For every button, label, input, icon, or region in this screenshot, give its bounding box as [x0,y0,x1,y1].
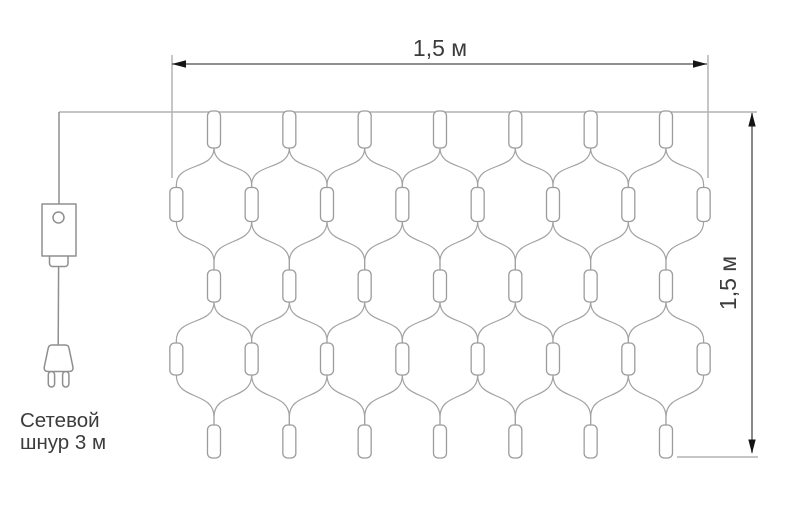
led-lamp [320,188,333,222]
plug-prong-left [48,372,54,388]
arrow-left-icon [172,60,186,67]
plug-prong-right [63,372,69,388]
net-wire [478,375,516,425]
net-wire [591,302,629,343]
net-wire [365,375,403,425]
led-lamp [659,270,672,302]
net-wire [327,375,365,425]
power-cord-assembly [42,112,76,387]
cord-caption-line1: Сетевой [20,409,100,432]
arrow-right-icon [693,60,707,67]
cord-caption-line2: шнур 3 м [20,431,106,454]
net-wire [553,222,591,271]
net-wire [252,148,290,188]
net-wire [252,222,290,271]
net-wire [176,302,214,343]
net-wire [214,222,252,271]
led-lamp [358,270,371,302]
height-dimension: 1,5 м [677,113,758,458]
led-lamp [283,111,296,148]
net-light-diagram: 1,5 м 1,5 м Сетевой шнур 3 м [0,0,793,531]
net-wire [176,375,214,425]
net-wire [365,148,403,188]
net-wire [478,148,516,188]
net-wire [289,375,327,425]
led-lamp [170,343,183,375]
net-wire [289,148,327,188]
width-label: 1,5 м [413,35,467,61]
net-wire [176,148,214,188]
net-wire [176,222,214,271]
net-wire [666,302,704,343]
net-wire [327,222,365,271]
net-wire [252,302,290,343]
led-lamp [283,270,296,302]
led-lamp [659,425,672,458]
led-lamp [433,111,446,148]
led-lamp [509,111,522,148]
led-lamp [170,188,183,222]
led-lamp [320,343,333,375]
net-wire [515,222,553,271]
led-lamp [584,111,597,148]
plug-body [44,345,73,372]
net-wire [553,148,591,188]
net-wire [591,222,629,271]
led-lamp [396,188,409,222]
net-wire [402,375,440,425]
net-wire [214,375,252,425]
led-lamp [622,188,635,222]
net-wire [289,302,327,343]
led-lamp [245,188,258,222]
net-wire [666,222,704,271]
led-lamp [358,111,371,148]
led-lamp [622,343,635,375]
led-lamp [659,111,672,148]
width-dimension: 1,5 м [172,35,708,178]
net-wire [666,375,704,425]
net-wire [402,222,440,271]
cord-caption: Сетевой шнур 3 м [20,409,106,454]
led-lamp [208,425,221,458]
net-wire [440,302,478,343]
net-wire [553,375,591,425]
led-lamp [697,343,710,375]
led-lamp [584,425,597,458]
led-lamp [546,188,559,222]
led-lamp [358,425,371,458]
net-wire [327,302,365,343]
height-label: 1,5 м [715,256,741,310]
led-lamp [208,270,221,302]
net-wire [515,302,553,343]
led-lamp [584,270,597,302]
led-lamp [245,343,258,375]
led-lamp [433,270,446,302]
net-curtain [59,111,757,458]
arrow-up-icon [748,113,755,127]
led-lamp [283,425,296,458]
led-lamp [697,188,710,222]
net-wire [666,148,704,188]
net-wire [214,148,252,188]
arrow-down-icon [748,440,755,454]
led-lamp [396,343,409,375]
net-wire [515,148,553,188]
led-lamp [471,188,484,222]
net-wire [591,375,629,425]
net-wire [440,148,478,188]
net-wire [402,302,440,343]
led-lamp [471,343,484,375]
net-wire [440,222,478,271]
net-wire [402,148,440,188]
led-lamp [509,425,522,458]
net-wire [327,148,365,188]
net-wire [252,375,290,425]
led-lamp [208,111,221,148]
led-lamp [546,343,559,375]
net-wire [365,302,403,343]
net-wire [440,375,478,425]
net-wire [214,302,252,343]
net-wire [628,302,666,343]
net-wire [553,302,591,343]
led-lamp [433,425,446,458]
net-wire [591,148,629,188]
net-wire [478,222,516,271]
net-wire [628,375,666,425]
net-wire [365,222,403,271]
net-wire [515,375,553,425]
net-wire [628,148,666,188]
net-wire [478,302,516,343]
led-lamp [509,270,522,302]
net-wire [628,222,666,271]
net-wire [289,222,327,271]
